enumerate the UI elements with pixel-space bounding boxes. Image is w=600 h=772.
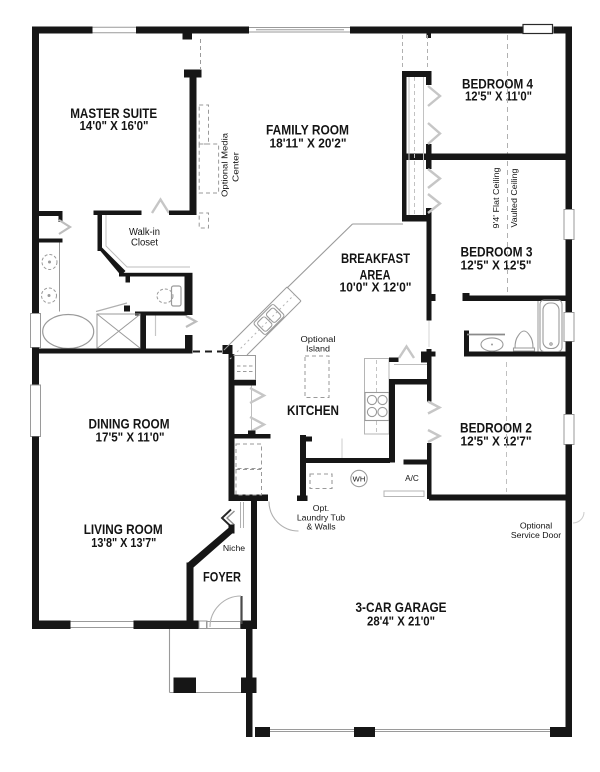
svg-text:LIVING ROOM: LIVING ROOM — [84, 521, 163, 537]
svg-text:KITCHEN: KITCHEN — [287, 402, 339, 418]
svg-text:BREAKFAST: BREAKFAST — [341, 250, 410, 266]
svg-text:28'4" X 21'0": 28'4" X 21'0" — [367, 615, 435, 629]
svg-text:10'0" X 12'0": 10'0" X 12'0" — [340, 281, 412, 295]
svg-text:18'11" X 20'2": 18'11" X 20'2" — [270, 137, 347, 151]
svg-text:FAMILY ROOM: FAMILY ROOM — [266, 122, 349, 138]
svg-text:FOYER: FOYER — [203, 569, 241, 585]
svg-text:A/C: A/C — [405, 474, 419, 483]
svg-text:Closet: Closet — [131, 238, 158, 249]
svg-text:Optional: Optional — [520, 521, 552, 531]
svg-text:Vaulted Ceiling: Vaulted Ceiling — [509, 168, 519, 227]
svg-text:WH: WH — [353, 475, 366, 484]
svg-text:Center: Center — [231, 152, 241, 182]
svg-text:BEDROOM 3: BEDROOM 3 — [461, 244, 533, 260]
svg-text:12'5" X 11'0": 12'5" X 11'0" — [465, 90, 532, 104]
svg-text:14'0" X 16'0": 14'0" X 16'0" — [80, 119, 149, 133]
svg-text:17'5" X 11'0": 17'5" X 11'0" — [96, 431, 165, 445]
svg-text:13'8" X 13'7": 13'8" X 13'7" — [91, 536, 156, 550]
svg-text:Opt.: Opt. — [313, 503, 329, 513]
svg-text:9'4' Flat Ceiling: 9'4' Flat Ceiling — [491, 167, 501, 228]
svg-text:Island: Island — [306, 344, 330, 354]
svg-text:12'5" X 12'7": 12'5" X 12'7" — [461, 435, 532, 449]
svg-text:Niche: Niche — [223, 543, 245, 553]
svg-text:DINING ROOM: DINING ROOM — [89, 416, 170, 432]
svg-text:3-CAR GARAGE: 3-CAR GARAGE — [356, 599, 447, 615]
svg-text:& Walls: & Walls — [306, 522, 336, 532]
svg-text:Service Door: Service Door — [511, 530, 561, 540]
svg-text:Optional: Optional — [301, 334, 336, 344]
svg-text:BEDROOM 2: BEDROOM 2 — [460, 420, 532, 436]
svg-text:Optional Media: Optional Media — [220, 133, 230, 197]
svg-text:Walk-in: Walk-in — [129, 227, 160, 238]
svg-text:12'5" X 12'5": 12'5" X 12'5" — [461, 259, 532, 273]
